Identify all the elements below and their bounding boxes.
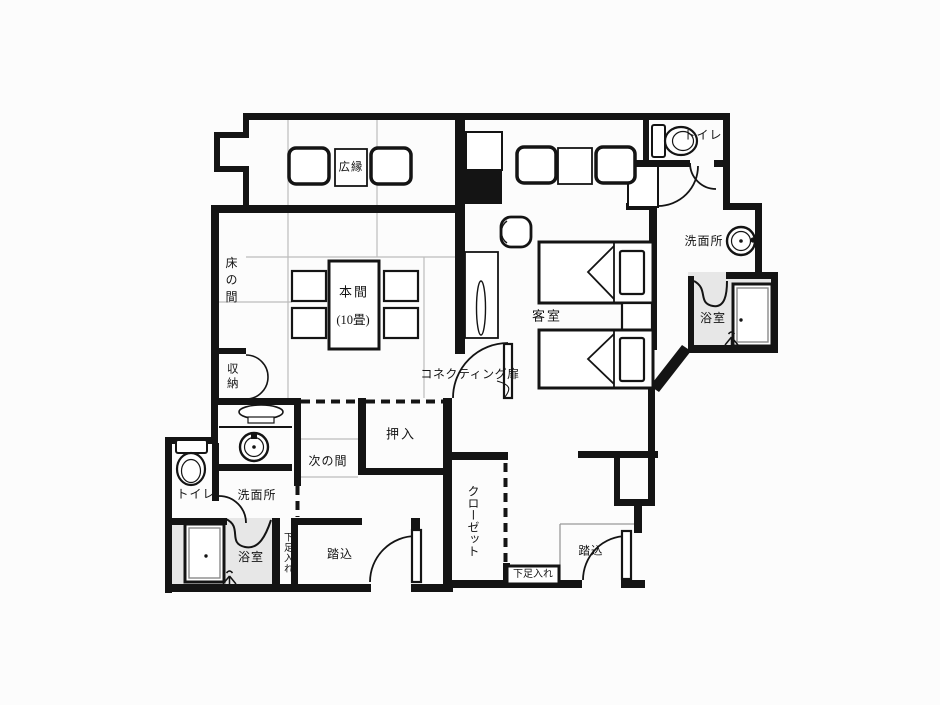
label-toilet-right: トイレ — [683, 129, 722, 141]
label-kyakushitsu: 客室 — [532, 310, 562, 323]
label-closet: クローゼット — [467, 485, 479, 557]
label-honma: 本間 — [339, 286, 369, 299]
entrance-door-left — [370, 530, 421, 582]
label-oshiire: 押入 — [386, 428, 416, 441]
label-senmenjo-left: 洗面所 — [237, 489, 276, 501]
sink-icon-right — [727, 227, 756, 255]
pillow-icon — [620, 338, 644, 381]
pillow-icon — [620, 251, 644, 294]
bathtub-icon-right — [733, 284, 772, 346]
bathtub-icon-left — [185, 524, 224, 582]
label-tokonoma: 床の間 — [225, 257, 237, 308]
toilet-icon-left — [176, 440, 207, 485]
armchair-icon — [289, 148, 329, 184]
nightstand-icon — [622, 303, 652, 330]
label-hiroen: 広縁 — [339, 162, 364, 174]
label-honma-size: (10畳) — [336, 314, 369, 327]
label-fumikomi-left: 踏込 — [327, 548, 353, 560]
low-table-icon — [329, 261, 379, 349]
label-toilet-left: トイレ — [176, 488, 215, 500]
side-table-icon — [558, 148, 592, 184]
bifold-door-storage — [246, 355, 268, 399]
label-connecting-door: コネクティング扉 — [420, 368, 519, 380]
sink-icon-left — [240, 433, 268, 461]
label-yokushitsu-right: 浴室 — [700, 312, 726, 324]
label-fumikomi-right: 踏込 — [579, 546, 604, 558]
washroom-door-right — [628, 166, 698, 207]
label-tsuginoma: 次の間 — [308, 455, 347, 467]
guest-chair-set — [517, 147, 635, 184]
armchair-icon — [517, 147, 556, 183]
floor-plan-page: 広縁 トイレ 床の間 本間 (10畳) 客室 洗面所 浴室 収納 コネクティング… — [0, 0, 940, 705]
floor-plan — [0, 0, 940, 705]
label-yokushitsu-left: 浴室 — [238, 551, 264, 563]
dresser-mirror-icon — [465, 252, 498, 338]
shelf-icon — [466, 132, 502, 170]
armchair-icon — [371, 148, 411, 184]
bed-icon-1 — [539, 242, 653, 303]
label-senmenjo-right: 洗面所 — [684, 235, 723, 247]
armchair-icon — [596, 147, 635, 183]
tv-cabinet-icon — [465, 170, 502, 204]
bed-icon-2 — [539, 330, 653, 388]
vanity-counter-icon — [219, 405, 292, 427]
label-getabako-left: 下足入れ — [281, 532, 291, 574]
label-shunou: 収納 — [225, 363, 237, 392]
label-getabako-right: 下足入れ — [513, 570, 553, 580]
desk-chair-icon — [501, 217, 531, 247]
